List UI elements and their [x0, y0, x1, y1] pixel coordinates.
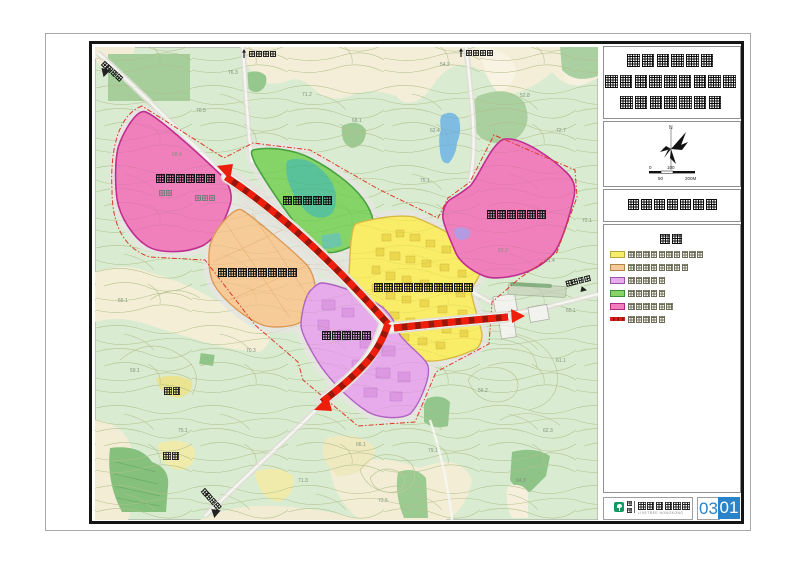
svg-text:200M: 200M — [685, 176, 697, 181]
svg-text:N: N — [669, 125, 673, 131]
svg-text:50: 50 — [658, 176, 664, 181]
svg-text:0: 0 — [649, 165, 652, 170]
svg-text:100: 100 — [667, 165, 675, 170]
